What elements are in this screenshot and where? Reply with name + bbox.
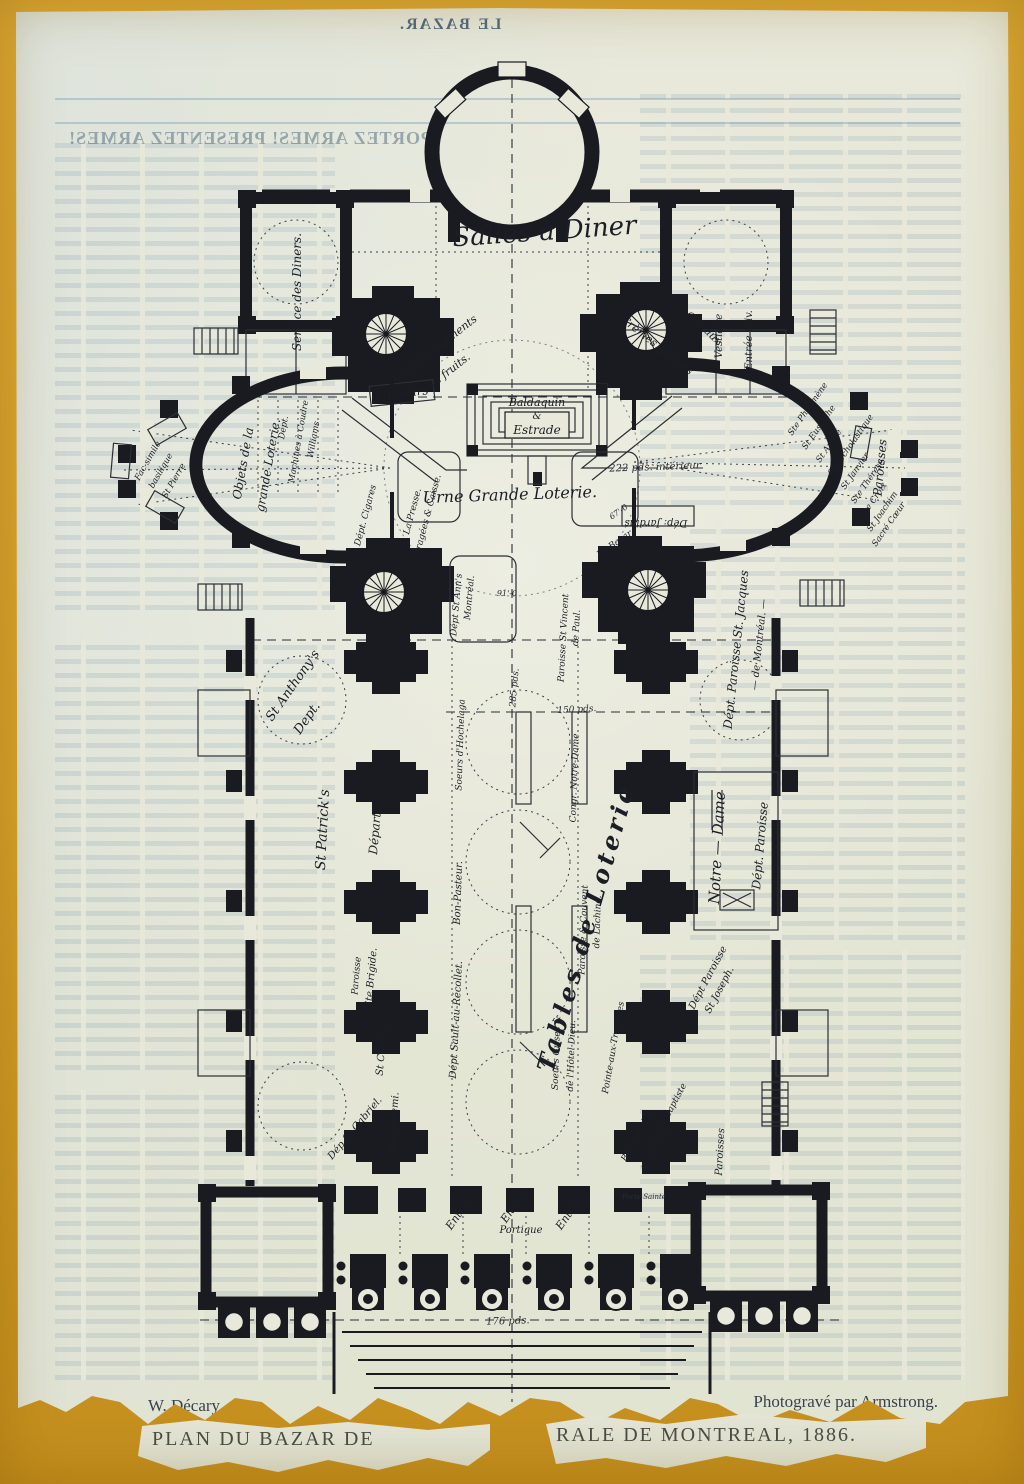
- plan-label-congr-notre-dame: Congr. Notre-Dame: [568, 733, 581, 822]
- plan-label-dim-150: 150 pds.: [557, 704, 597, 716]
- plate-title-right: RALE DE MONTREAL, 1886.: [556, 1424, 857, 1447]
- plan-label-st-vincent-2: de Paul.: [571, 609, 583, 646]
- plan-label-st-anns-2: Montréal.: [462, 575, 477, 622]
- plan-label-dim-285: 285 pds.: [508, 668, 521, 709]
- plan-label-depart: Départ.: [366, 808, 384, 856]
- plan-label-st-patricks: St Patrick's: [313, 789, 333, 871]
- scanned-page-photo: LE BAZAR. PORTEZ ARMES! PRESENTEZ ARMES!: [0, 0, 1024, 1484]
- plan-label-st-jacques-2: — de Montréal. —: [749, 599, 770, 691]
- torn-fragment-title-left: PLAN DU BAZAR DE: [138, 1420, 490, 1472]
- plan-label-paroisses-bottom: Paroisses: [714, 1128, 728, 1177]
- plan-label-soeurs-hochelaga: Soeurs d'Hochelaga: [454, 699, 467, 791]
- caption-credit: Photogravé par Armstrong.: [753, 1392, 938, 1412]
- plan-label-dim-176: 176 pds.: [486, 1315, 530, 1328]
- plan-label-st-vincent-1: Paroisse St Vincent: [557, 593, 572, 683]
- torn-fragment-title-right: RALE DE MONTREAL, 1886.: [546, 1414, 926, 1468]
- plan-label-soeurs-grises-1: Soeurs Grises &: [551, 1016, 564, 1091]
- plan-label-dep-jardins: Dép: Jardins: [625, 517, 689, 528]
- plan-label-urne-grande-loterie: Urne Grande Loterie.: [422, 482, 597, 507]
- plan-label-st-anthonys-2: Dept.: [290, 699, 323, 738]
- lower-crossing-piers: [330, 452, 706, 646]
- plate-title-left: PLAN DU BAZAR DE: [152, 1428, 375, 1451]
- plan-label-bon-pasteur: Bon-Pasteur.: [452, 861, 465, 926]
- caption-artist: W. Décary.: [148, 1396, 223, 1416]
- plan-label-dim-222: 222 pds. intérieur: [608, 460, 702, 474]
- plan-label-sault-au-recollet: Dépt Sault-au-Récollet.: [448, 961, 465, 1080]
- floor-plan-svg: Salles à DinerService des Diners.Rafraîc…: [0, 0, 1024, 1484]
- plan-label-notre-dame: Notre — Dame: [705, 791, 729, 906]
- plan-label-baldaquin: Baldaquin: [508, 396, 566, 409]
- plan-label-baldaquin-et: &: [533, 411, 542, 422]
- plan-label-dept-paroisse-nd: Dépt. Paroisse: [749, 801, 771, 891]
- plan-label-machines-3: Williams: [306, 420, 322, 459]
- newspaper-page: LE BAZAR. PORTEZ ARMES! PRESENTEZ ARMES!: [0, 0, 1024, 1484]
- plan-label-lachine-2: de Lachine.: [592, 895, 604, 948]
- plan-label-ste-brigide-1: Paroisse: [350, 956, 363, 996]
- plan-label-pointe-aux-trembles: Pointe-aux-Trembles: [601, 1000, 627, 1095]
- plan-label-entree-privee: Entrée priv.: [744, 310, 755, 371]
- plan-label-dim-91: 91'-0: [497, 589, 517, 598]
- plan-label-porte-sainte: Porte Sainte: [621, 1193, 666, 1201]
- plan-label-objets-1: Objets de la: [230, 426, 256, 500]
- plan-label-machines-2: Machines à Coudre: [286, 399, 312, 484]
- plan-label-vestiaire: Vestiaire: [714, 314, 725, 359]
- plan-label-portique: Portique: [498, 1225, 542, 1236]
- plan-label-estrade: Estrade: [512, 423, 560, 437]
- plan-label-st-jacques-1: Dépt. Paroisse St. Jacques: [721, 569, 752, 730]
- plan-label-service-des-diners: Service des Diners.: [290, 233, 304, 351]
